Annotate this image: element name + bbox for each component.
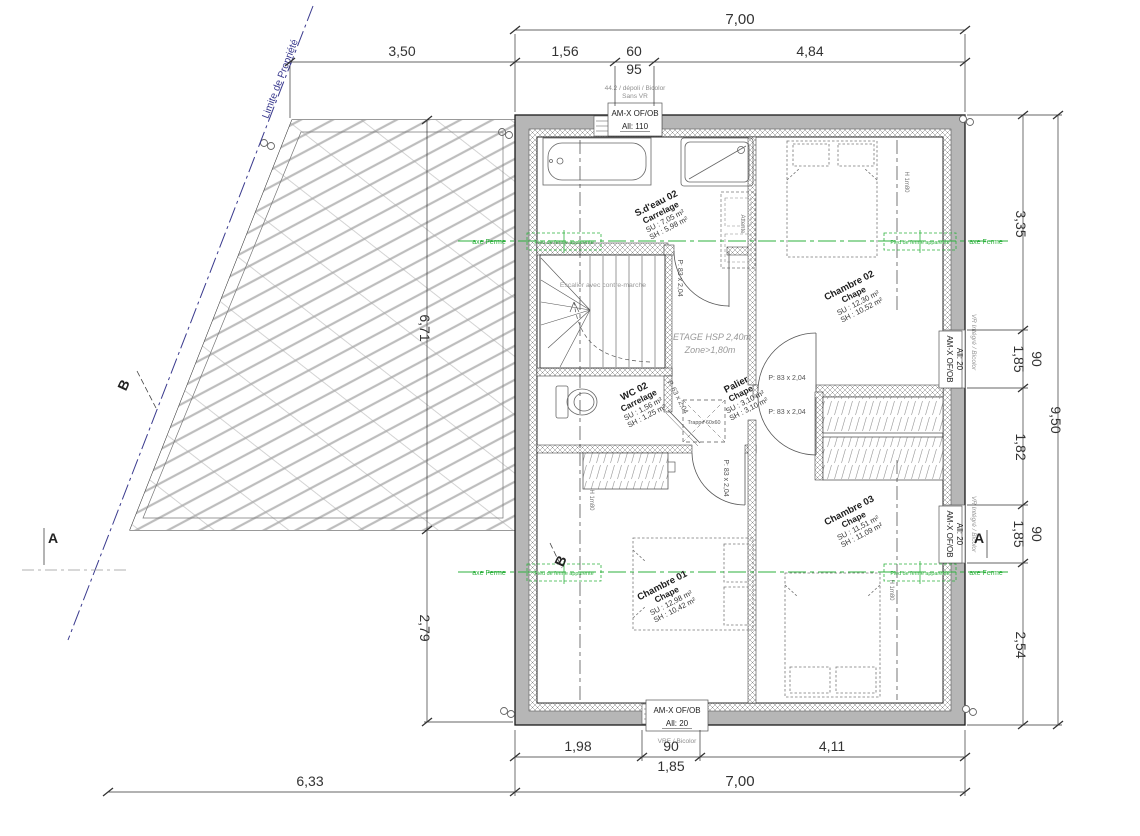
dim-bottom-90: 90: [663, 738, 679, 754]
dim-right-950: 9,50: [1048, 406, 1064, 433]
window-bottom-label: AM-X OF/OB: [653, 706, 700, 715]
door-label-ch03: P: 83 x 2,04: [768, 409, 805, 416]
window-right-upper-allege: All: 20: [955, 348, 964, 371]
section-marker-a-right: A: [974, 530, 987, 558]
door-label-bathroom: P: 83 x 2,04: [676, 259, 683, 296]
section-marker-b-left: B: [114, 371, 156, 408]
stairs-label: Escalier avec contre-marche: [560, 282, 646, 289]
pied-ferme-label: Pied de ferme apparente: [890, 571, 949, 577]
h180-label-ch03: H 1m80: [888, 579, 894, 601]
pied-ferme-label: Pied de ferme apparente: [534, 571, 593, 577]
dim-right-254: 2,54: [1013, 631, 1029, 658]
section-marker-a-left: A: [22, 528, 130, 570]
dim-right-185a: 1,85: [1011, 345, 1027, 372]
section-a-label: A: [48, 530, 58, 546]
door-label-ch02: P: 83 x 2,04: [768, 375, 805, 382]
dim-bottom-185: 1,85: [657, 758, 684, 774]
section-a-label: A: [974, 530, 984, 546]
trappe-label: Trappe 60x60: [687, 420, 720, 426]
axe-ferme-label: axe Ferme: [472, 570, 506, 577]
axe-ferme-label: axe Ferme: [472, 239, 506, 246]
dim-right-90a: 90: [1029, 351, 1045, 367]
window-top-allege: All: 110: [622, 122, 649, 131]
dim-top-484: 4,84: [796, 43, 823, 59]
dim-bottom-198: 1,98: [564, 738, 591, 754]
axe-ferme-label: axe Ferme: [969, 239, 1003, 246]
window-top-note1: 44.2 / dépoli / Bicolor: [605, 85, 667, 92]
floor-plan-svg: Limite de Propriété AM-X OF/OB: [0, 0, 1140, 836]
closet-ch03: [823, 437, 943, 480]
dim-right-90b: 90: [1029, 526, 1045, 542]
closet-ch02: [823, 397, 943, 433]
window-right-lower: AM-X OF/OB All: 20 VR Intégré / Bicolor: [939, 496, 977, 563]
closet-wc: [583, 453, 675, 489]
window-top-note2: Sans VR: [622, 93, 648, 100]
attente-label: Attente: [739, 214, 745, 234]
staircase: Escalier avec contre-marche: [540, 255, 665, 368]
dim-top-700: 7,00: [725, 11, 754, 28]
dim-top-156: 1,56: [551, 43, 578, 59]
axe-ferme-label: axe Ferme: [969, 570, 1003, 577]
roof-terrace: [100, 90, 550, 560]
window-top-label: AM-X OF/OB: [611, 109, 658, 118]
window-right-upper-label: AM-X OF/OB: [945, 335, 954, 382]
etage-note: ETAGE HSP 2,40m: [673, 332, 752, 342]
window-right-lower-allege: All: 20: [955, 523, 964, 546]
h180-label-ch02: H 1m80: [903, 171, 909, 193]
dim-right-185b: 1,85: [1011, 520, 1027, 547]
h180-label-ch01: H 1m80: [588, 489, 594, 511]
dim-left-279: 2,79: [417, 614, 433, 641]
pied-ferme-label: Pied de ferme apparente: [534, 240, 593, 246]
zone-note: Zone>1,80m: [684, 345, 736, 355]
dim-top-350: 3,50: [388, 43, 415, 59]
dim-top-60: 60: [626, 43, 642, 59]
dim-top-95: 95: [626, 61, 642, 77]
dim-right-182: 1,82: [1013, 433, 1029, 460]
section-b-label: B: [114, 377, 133, 393]
dim-right-335: 3,35: [1013, 210, 1029, 237]
dim-bottom-411: 4,11: [819, 738, 845, 754]
window-top: AM-X OF/OB All: 110 44.2 / dépoli / Bico…: [594, 85, 666, 136]
window-bottom-allege: All: 20: [666, 719, 689, 728]
pied-ferme-label: Pied de ferme apparente: [890, 240, 949, 246]
window-right-upper-note: VR Intégré / Bicolor: [970, 314, 977, 371]
window-right-lower-label: AM-X OF/OB: [945, 510, 954, 557]
door-label-ch01: P: 83 x 2,04: [722, 459, 729, 496]
dim-bottom-633: 6,33: [296, 773, 323, 789]
property-limit-label: Limite de Propriété: [260, 38, 301, 121]
floor-plan-canvas: Limite de Propriété AM-X OF/OB: [0, 0, 1140, 836]
dim-left-671: 6,71: [417, 314, 433, 341]
dim-bottom-700: 7,00: [725, 773, 754, 790]
